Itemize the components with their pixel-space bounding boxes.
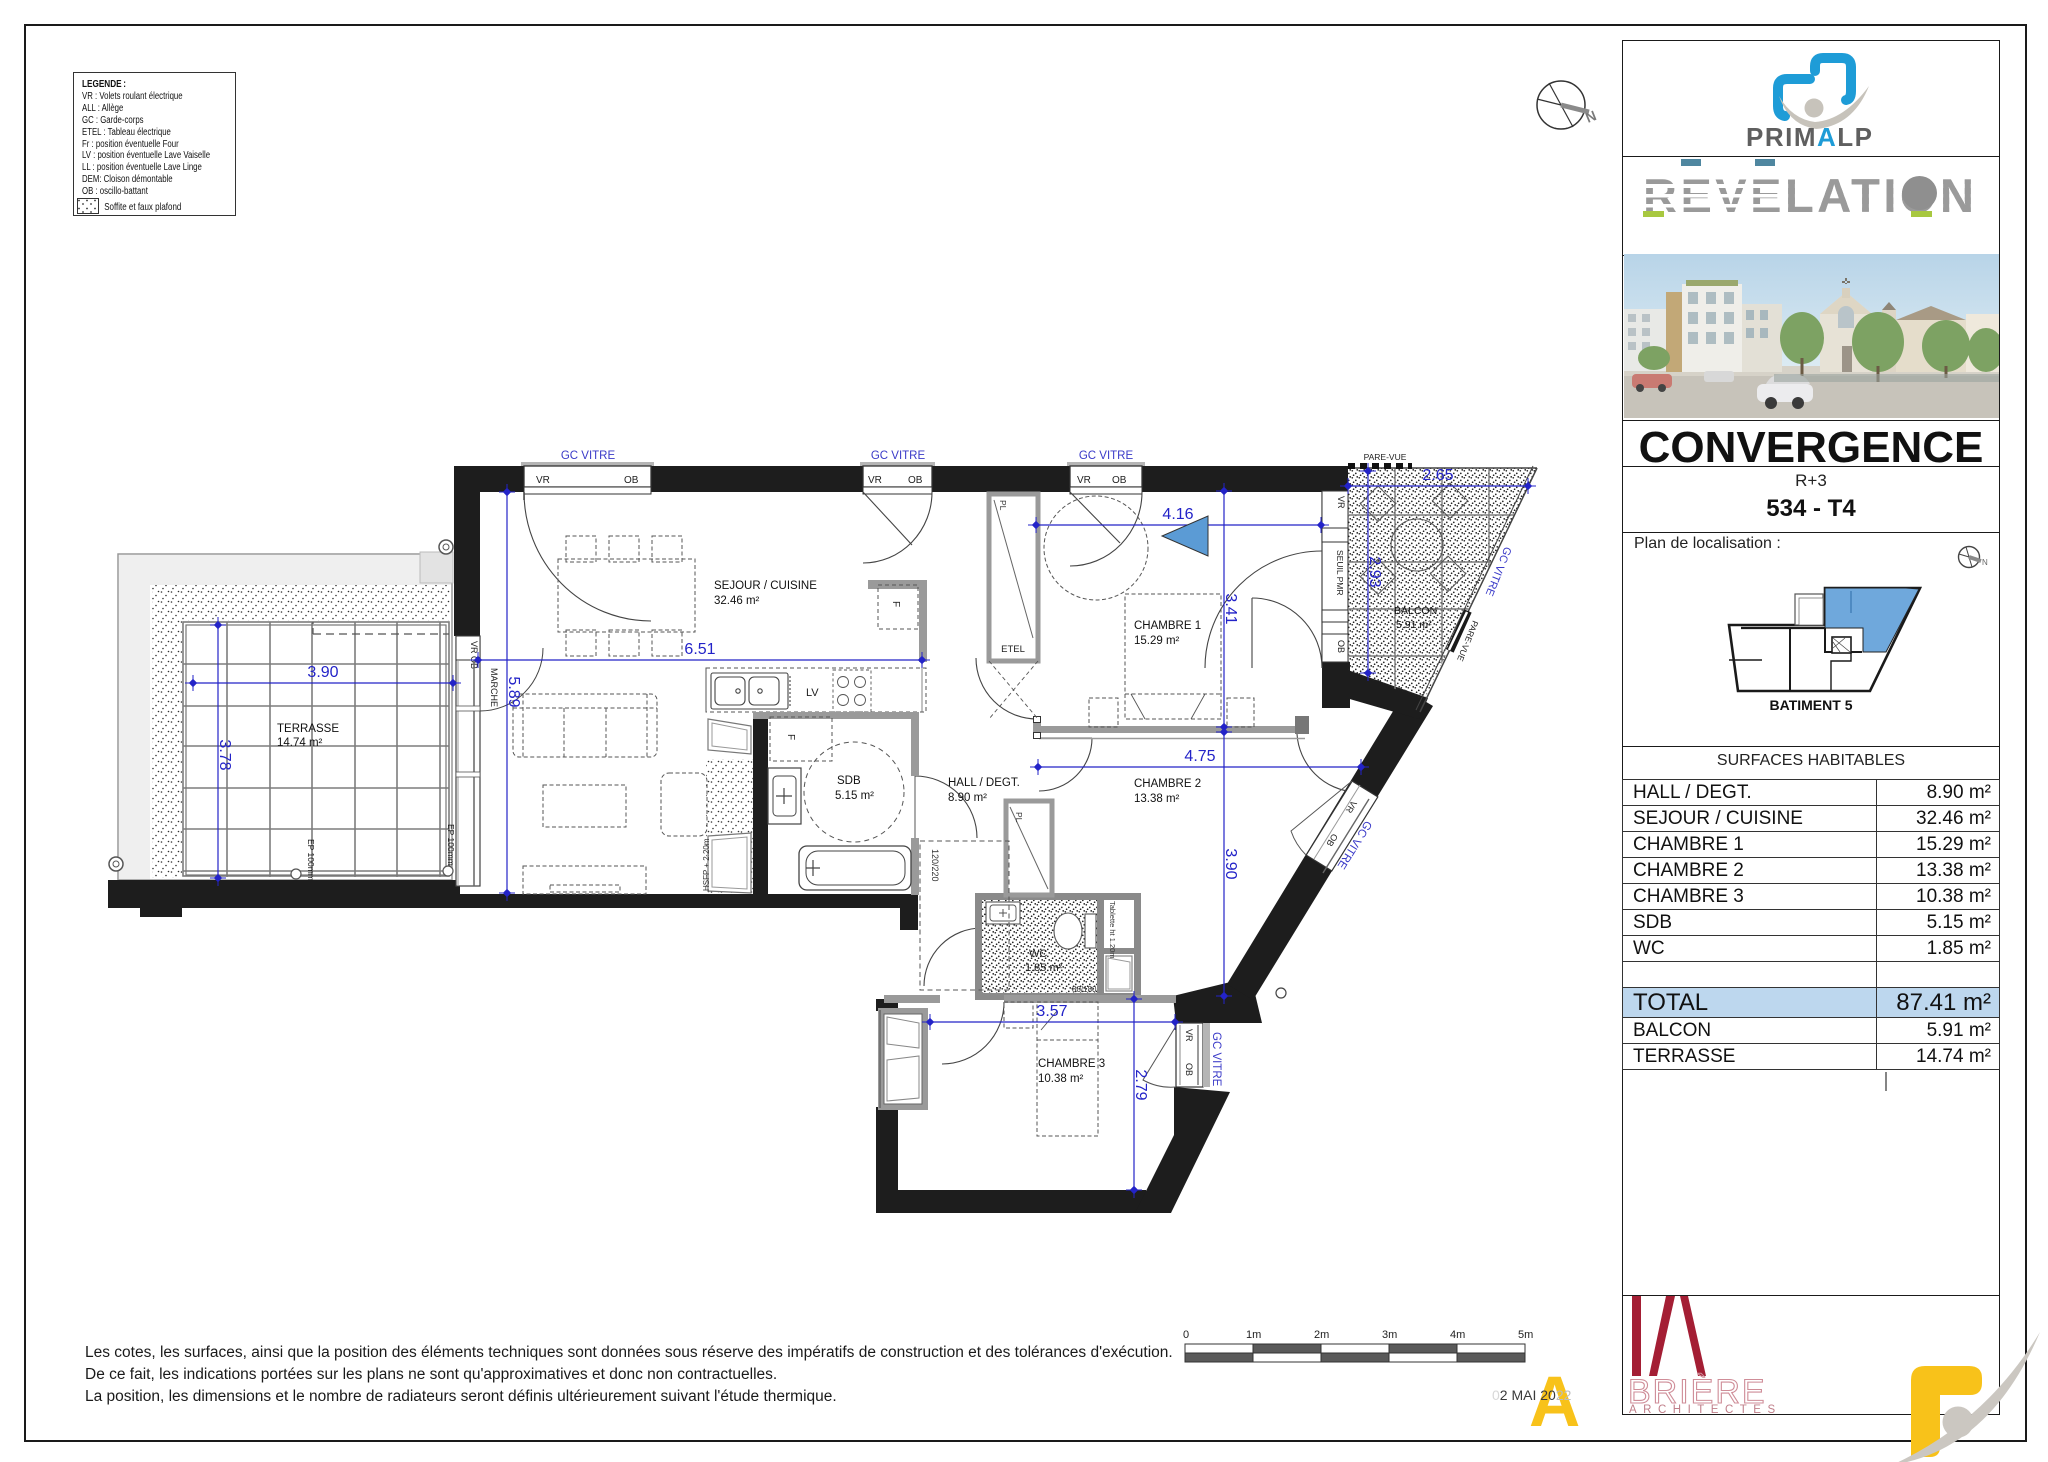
- svg-text:VR: VR: [1184, 1029, 1194, 1042]
- svg-text:HSFP + 2.20m: HSFP + 2.20m: [702, 838, 711, 891]
- svg-text:GC VITRE: GC VITRE: [1210, 1032, 1222, 1087]
- svg-text:N: N: [1583, 107, 1598, 126]
- svg-text:5.89: 5.89: [505, 676, 522, 707]
- svg-text:SEUIL PMR: SEUIL PMR: [1335, 550, 1345, 596]
- svg-text:14.74 m²: 14.74 m²: [277, 737, 323, 749]
- svg-text:OB: OB: [1184, 1063, 1194, 1076]
- svg-text:2m: 2m: [1314, 1329, 1329, 1341]
- svg-text:4m: 4m: [1450, 1329, 1465, 1341]
- svg-text:WC: WC: [1029, 948, 1047, 960]
- svg-text:3.78: 3.78: [216, 739, 233, 770]
- svg-text:3m: 3m: [1382, 1329, 1397, 1341]
- svg-text:LV: LV: [806, 687, 819, 699]
- svg-text:6.51: 6.51: [684, 641, 715, 658]
- svg-text:EP 100mm: EP 100mm: [306, 839, 316, 881]
- svg-text:1.85 m²: 1.85 m²: [1025, 962, 1063, 974]
- svg-text:OB: OB: [908, 475, 923, 486]
- svg-text:BALCON: BALCON: [1394, 605, 1437, 617]
- svg-text:GC VITRE: GC VITRE: [1079, 450, 1134, 462]
- svg-text:N: N: [1982, 558, 1988, 567]
- svg-text:80/180: 80/180: [1072, 985, 1097, 994]
- svg-text:PARE-VUE: PARE-VUE: [1364, 452, 1407, 462]
- svg-text:SDB: SDB: [837, 775, 861, 787]
- svg-text:OB: OB: [1336, 640, 1346, 653]
- svg-text:2.79: 2.79: [1132, 1069, 1149, 1100]
- svg-text:VR: VR: [868, 475, 882, 486]
- svg-text:PRIMALP: PRIMALP: [1746, 122, 1874, 152]
- svg-text:VR: VR: [536, 475, 550, 486]
- svg-text:TERRASSE: TERRASSE: [277, 723, 339, 735]
- svg-text:ETEL: ETEL: [1001, 644, 1025, 655]
- svg-text:15.29 m²: 15.29 m²: [1134, 635, 1180, 647]
- svg-text:10.38 m²: 10.38 m²: [1038, 1073, 1084, 1085]
- svg-text:GC VITRE: GC VITRE: [871, 450, 926, 462]
- svg-text:13.38 m²: 13.38 m²: [1134, 793, 1180, 805]
- svg-text:CHAMBRE 2: CHAMBRE 2: [1134, 778, 1201, 790]
- svg-text:VR: VR: [1336, 496, 1346, 509]
- svg-text:VR: VR: [1077, 475, 1091, 486]
- svg-text:PL: PL: [1014, 812, 1024, 823]
- svg-text:4.75: 4.75: [1184, 748, 1215, 765]
- svg-text:2.93: 2.93: [1366, 556, 1383, 587]
- svg-text:2.65: 2.65: [1422, 467, 1453, 484]
- svg-text:0: 0: [1183, 1329, 1189, 1341]
- svg-text:MARCHE: MARCHE: [489, 668, 499, 707]
- svg-text:32.46 m²: 32.46 m²: [714, 595, 760, 607]
- svg-text:HALL / DEGT.: HALL / DEGT.: [948, 777, 1020, 789]
- svg-text:5.91 m²: 5.91 m²: [1396, 619, 1432, 631]
- svg-text:SEJOUR / CUISINE: SEJOUR / CUISINE: [714, 580, 817, 592]
- svg-text:F: F: [785, 734, 796, 740]
- svg-text:3.57: 3.57: [1036, 1003, 1067, 1020]
- svg-text:4.16: 4.16: [1162, 506, 1193, 523]
- svg-text:Tablette ht 1.20m: Tablette ht 1.20m: [1108, 901, 1117, 959]
- svg-text:CHAMBRE 3: CHAMBRE 3: [1038, 1058, 1105, 1070]
- svg-text:5m: 5m: [1518, 1329, 1533, 1341]
- svg-text:ARCHITECTES: ARCHITECTES: [1629, 1404, 1782, 1414]
- svg-text:F: F: [890, 601, 901, 607]
- svg-text:PL: PL: [998, 500, 1008, 511]
- svg-text:CHAMBRE 1: CHAMBRE 1: [1134, 620, 1201, 632]
- svg-text:5.15 m²: 5.15 m²: [835, 790, 874, 802]
- svg-text:8.90 m²: 8.90 m²: [948, 792, 987, 804]
- svg-text:3.41: 3.41: [1222, 593, 1239, 624]
- svg-text:EP 100mm: EP 100mm: [446, 824, 456, 866]
- svg-text:OB: OB: [624, 475, 639, 486]
- svg-text:3.90: 3.90: [1222, 848, 1239, 879]
- svg-text:OB: OB: [1112, 475, 1127, 486]
- svg-text:GC VITRE: GC VITRE: [561, 450, 616, 462]
- svg-text:3.90: 3.90: [307, 664, 338, 681]
- svg-text:120/220: 120/220: [930, 849, 940, 882]
- svg-text:1m: 1m: [1246, 1329, 1261, 1341]
